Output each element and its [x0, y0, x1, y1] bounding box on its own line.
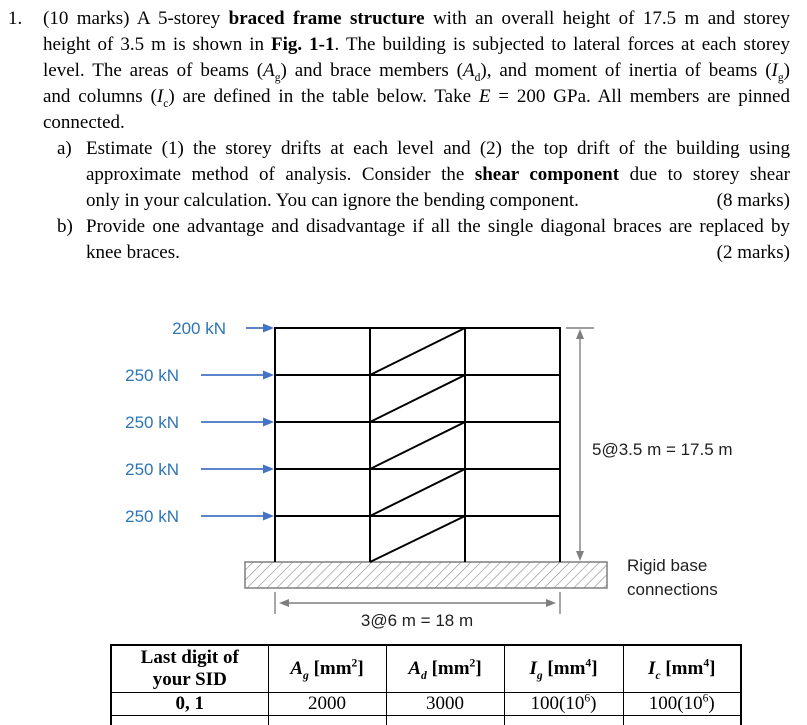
force-arrow-head-icon	[263, 512, 274, 521]
height-dimension: 5@3.5 m = 17.5 m	[566, 328, 733, 561]
subitem-label: a)	[57, 136, 86, 214]
text-segment: only in your calculation. You can ignore…	[86, 188, 579, 214]
marks-label: (2 marks)	[717, 240, 790, 266]
dimension-arrow-up-icon	[576, 329, 584, 339]
text-line: only in your calculation. You can ignore…	[86, 188, 790, 214]
force-label: 200 kN	[172, 319, 226, 338]
text-line: Provide one advantage and disadvantage i…	[86, 214, 790, 240]
force-label: 250 kN	[125, 460, 179, 479]
table-cell-sid: 0, 1	[111, 693, 268, 716]
table-header-ag: Ag [mm2]	[268, 645, 386, 693]
rigid-base-hatch	[245, 562, 607, 588]
force-arrow-head-icon	[263, 465, 274, 474]
frame-brace	[370, 328, 465, 375]
force-label: 250 kN	[125, 507, 179, 526]
frame-brace	[370, 516, 465, 562]
text-line: knee braces. (2 marks)	[86, 240, 790, 266]
rigid-base-label: Rigid base	[627, 556, 707, 575]
rigid-base-label: connections	[627, 580, 718, 599]
table-cell-ag: 2000	[268, 693, 386, 716]
dimension-arrow-right-icon	[546, 599, 556, 607]
text-line: approximate method of analysis. Consider…	[86, 162, 790, 188]
dimension-arrow-down-icon	[576, 551, 584, 561]
subitem-label: b)	[57, 214, 86, 266]
force-row-2: 250 kN	[125, 460, 274, 479]
item-number: 1.	[8, 6, 43, 136]
force-row-roof: 200 kN	[172, 319, 274, 338]
table-header-sid: Last digit of your SID	[111, 645, 268, 693]
text-line: level. The areas of beams (Ag) and brace…	[43, 58, 790, 84]
problem-paragraph: 1. (10 marks) A 5-storey braced frame st…	[8, 6, 790, 136]
height-dimension-text: 5@3.5 m = 17.5 m	[592, 440, 733, 459]
page-root: { "colors": { "force_label": "#2E75B6", …	[0, 0, 807, 725]
table-row-clipped	[111, 716, 741, 725]
text-line: Estimate (1) the storey drifts at each l…	[86, 136, 790, 162]
force-label: 250 kN	[125, 413, 179, 432]
text-line: height of 3.5 m is shown in Fig. 1-1. Th…	[43, 32, 790, 58]
frame-brace	[370, 375, 465, 422]
text-line: connected.	[43, 110, 790, 136]
marks-label: (8 marks)	[717, 188, 790, 214]
table-cell-ad: 3000	[386, 693, 504, 716]
force-arrow-head-icon	[263, 418, 274, 427]
table-row: 0, 1 2000 3000 100(106) 100(106)	[111, 693, 741, 716]
subitem-a: a) Estimate (1) the storey drifts at eac…	[57, 136, 790, 214]
dimension-arrow-left-icon	[279, 599, 289, 607]
table-cell-ic: 100(106)	[623, 693, 741, 716]
table-header-ad: Ad [mm2]	[386, 645, 504, 693]
force-arrow-head-icon	[263, 324, 274, 333]
force-arrow-head-icon	[263, 371, 274, 380]
width-dimension: 3@6 m = 18 m	[275, 592, 560, 630]
force-row-1: 250 kN	[125, 507, 274, 526]
force-label: 250 kN	[125, 366, 179, 385]
frame-brace	[370, 422, 465, 469]
problem-statement: 1. (10 marks) A 5-storey braced frame st…	[0, 0, 807, 266]
table-cell-ig: 100(106)	[504, 693, 623, 716]
text-line: and columns (Ic) are defined in the tabl…	[43, 84, 790, 110]
text-line: (10 marks) A 5-storey braced frame struc…	[43, 6, 790, 32]
text-segment: knee braces.	[86, 240, 180, 266]
width-dimension-text: 3@6 m = 18 m	[361, 611, 473, 630]
force-row-4: 250 kN	[125, 366, 274, 385]
table-header-ic: Ic [mm4]	[623, 645, 741, 693]
frame-brace	[370, 469, 465, 516]
subitem-b: b) Provide one advantage and disadvantag…	[57, 214, 790, 266]
member-properties-table: Last digit of your SID Ag [mm2] Ad [mm2]…	[110, 644, 744, 725]
force-row-3: 250 kN	[125, 413, 274, 432]
braced-frame-figure: 200 kN 250 kN 250 kN 250 kN 250 kN 5@3.5…	[0, 300, 807, 644]
table-header-ig: Ig [mm4]	[504, 645, 623, 693]
